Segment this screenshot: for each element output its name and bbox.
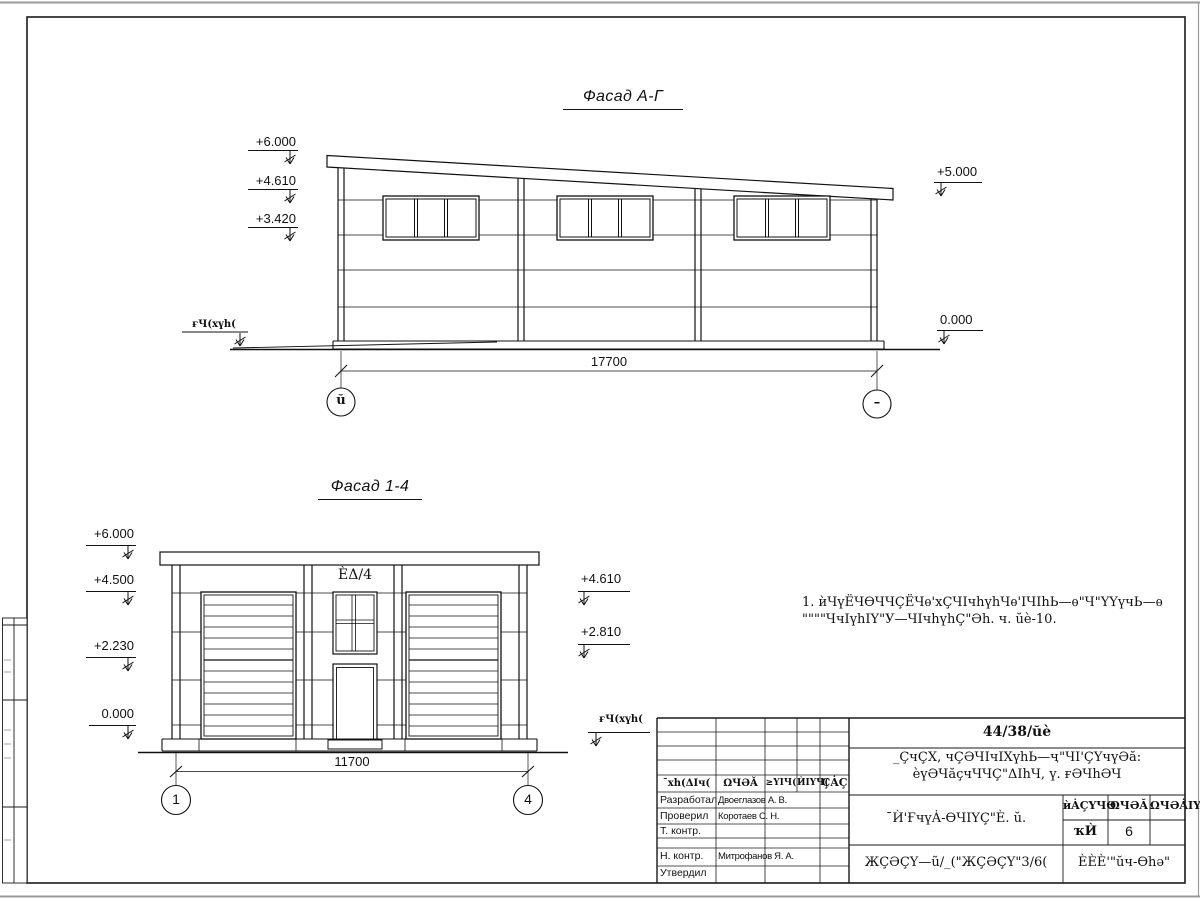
ground-level-label: ғЧ(хүһ( (588, 714, 654, 725)
elevation-arrow (235, 333, 246, 346)
axis-label: – (863, 396, 891, 410)
facade-ag-roof (327, 156, 893, 201)
titleblock-header-cell: ΩЧӘĂ (716, 778, 765, 789)
person-name: Митрофанов Я. А. (718, 852, 794, 862)
elevation-arrow (123, 592, 134, 605)
stage-value: ҡЍ (1063, 825, 1108, 839)
elevation-arrow (591, 733, 602, 746)
facade-ag-drawing (182, 151, 983, 419)
roller-door-left (201, 592, 296, 739)
dimension-value: 11700 (302, 755, 402, 769)
elevation-arrow (285, 190, 296, 203)
person-name: Двоеглазов А. В. (718, 796, 787, 806)
window-tag-label: ÈΔ/4 (330, 568, 380, 583)
elevation-arrow (579, 645, 590, 658)
entrance-door (328, 664, 382, 749)
elevation-mark: +4.500 (70, 573, 134, 587)
elevation-arrow (123, 546, 134, 559)
sheet-number: 6 (1108, 824, 1150, 839)
titleblock-header-cell: ЍΙҮЧ( (797, 779, 820, 789)
facade-ag-window (557, 196, 653, 240)
sheet-title: ¯Ѝ'ҒчүȦ-ѲЧΙҮÇ"È. ŭ. (849, 812, 1063, 826)
elevation-arrow (579, 592, 590, 605)
elevation-mark: +5.000 (937, 165, 977, 179)
facade-14-drawing (86, 546, 650, 815)
elevation-mark: 0.000 (940, 313, 973, 327)
elevation-mark: +3.420 (232, 212, 296, 226)
project-name-line2: èүӘЧăçчЧЧÇ"ΔΙһЧ, ү. ғӘЧһӘЧ (849, 768, 1185, 782)
facade-ag-title: Фасад А-Г (563, 88, 683, 110)
company-name: ÈÈÈ'"ŭч-Ѳһә" (1063, 856, 1185, 870)
facade-ag-window (383, 196, 479, 240)
project-name-line1: _ÇчÇХ, чÇӘЧΙчΙХүһЬ—ҷ"ЧΙ'ÇҮчүӘă: (849, 751, 1185, 765)
axis-label: 4 (514, 792, 542, 807)
role-label: Н. контр. (660, 851, 703, 863)
drawing-sheet: Фасад А-Г +6.000 +4.610 +3.420 +5.000 0.… (0, 0, 1200, 900)
person-name: Коротаев С. Н. (718, 812, 779, 822)
dimension-value: 17700 (559, 355, 659, 369)
elevation-mark: +4.610 (581, 572, 621, 586)
entrance-window (333, 592, 377, 654)
general-note-line2: """"ЧчΙүһΙҮ"У—ЧΙчһүһÇ"Әһ. ч. ŭè-10. (802, 613, 1057, 627)
left-attachment-table (3, 618, 28, 883)
titleblock-header-cell: ≥ҮΙЧ( (765, 779, 797, 789)
sheet-header: ΩЧӘĂ (1108, 800, 1150, 812)
facade-ag-window (734, 196, 830, 240)
doc-code: ЖÇӘÇҮ—ũ/_("ЖÇӘÇҮ"3/6( (849, 856, 1063, 870)
elevation-mark: +4.610 (232, 174, 296, 188)
titleblock-header-cell: ÇȦÇ (820, 777, 849, 789)
elevation-arrow (123, 658, 134, 671)
elevation-mark: +6.000 (232, 135, 296, 149)
axis-label: 1 (162, 792, 190, 807)
facade-14-fascia (160, 552, 539, 565)
sheets-total-header: ΩЧӘȦΙҮ (1150, 800, 1198, 812)
role-label: Т. контр. (660, 826, 701, 838)
elevation-mark: +2.230 (70, 639, 134, 653)
axis-label: ŭ (327, 394, 355, 408)
facade-14-title: Фасад 1-4 (318, 478, 422, 500)
role-label: Разработал (660, 795, 717, 807)
role-label: Проверил (660, 811, 708, 823)
stage-header: ѝȦÇҮЧѲ (1063, 800, 1108, 812)
general-note-line1: 1. ѝЧүЁЧѲЧЧÇЁЧѳ'хÇЧΙчһүһЧѳ'ΙЧΙһЬ—ѳ"Ч"ҮҮү… (802, 596, 1163, 610)
elevation-arrow (939, 331, 950, 344)
elevation-arrow (123, 726, 134, 739)
role-label: Утвердил (660, 868, 707, 880)
doc-number: 44/38/ŭè (849, 725, 1185, 740)
elevation-arrow (936, 183, 947, 196)
elevation-arrow (285, 151, 296, 164)
elevation-arrow (285, 228, 296, 241)
elevation-mark: +2.810 (581, 625, 621, 639)
elevation-mark: +6.000 (70, 527, 134, 541)
roller-door-right (406, 592, 501, 739)
titleblock-header-cell: ¯хһ(ΔΙч( (657, 778, 716, 789)
ground-level-label: ғЧ(хүһ( (181, 319, 247, 330)
elevation-mark: 0.000 (70, 707, 134, 721)
